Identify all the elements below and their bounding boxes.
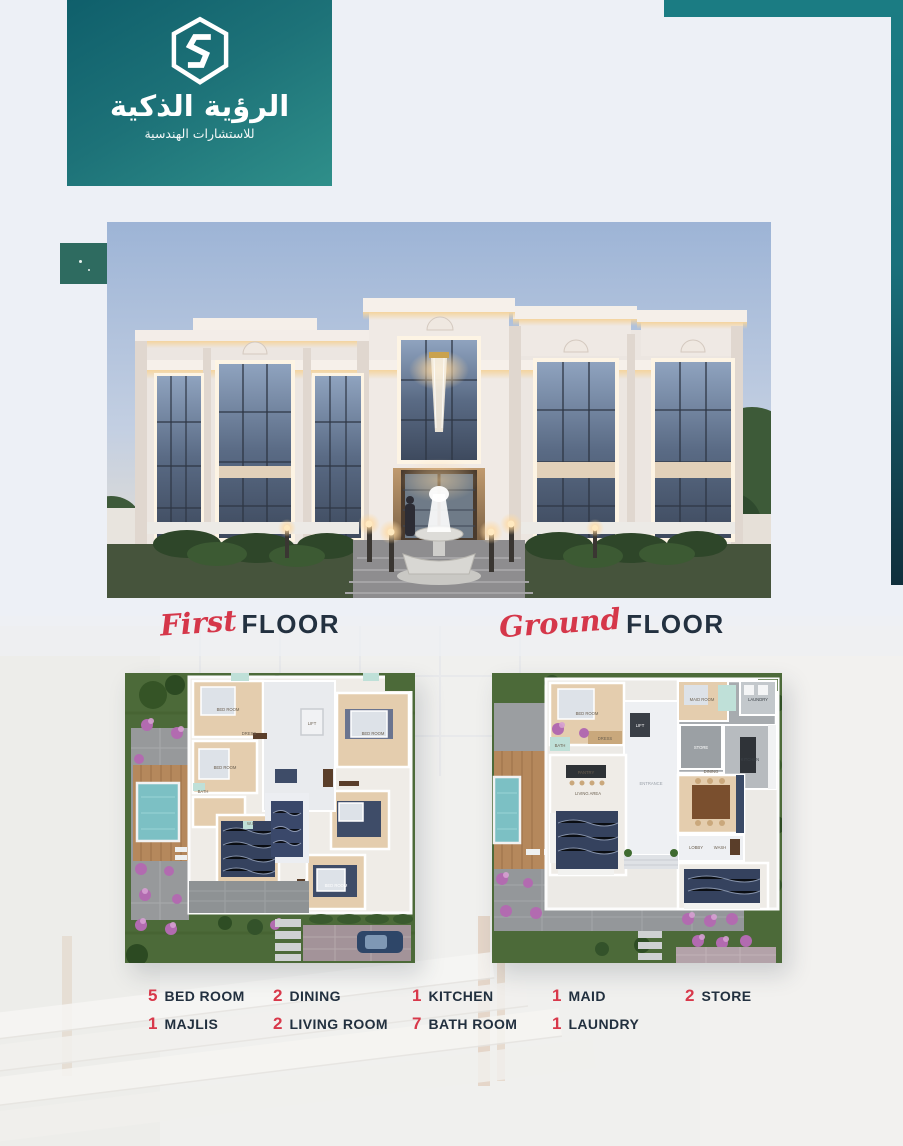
svg-text:PANTRY: PANTRY	[578, 770, 595, 775]
legend-item-store: 2 STORE	[685, 986, 751, 1006]
svg-text:BED ROOM: BED ROOM	[576, 711, 599, 716]
ground-floor-script: Ground	[498, 602, 622, 644]
legend-item-dining: 2 DINING	[273, 986, 341, 1006]
svg-text:BED ROOM: BED ROOM	[217, 707, 240, 712]
ground-floor-title: Ground FLOOR	[502, 606, 722, 652]
svg-text:ENTRANCE: ENTRANCE	[639, 781, 662, 786]
svg-text:LIFT: LIFT	[636, 723, 645, 728]
legend-item-bedroom: 5 BED ROOM	[148, 986, 245, 1006]
brand-title: الرؤية الذكية	[110, 90, 289, 123]
first-floor-word: FLOOR	[242, 609, 341, 640]
svg-text:STORE: STORE	[694, 745, 709, 750]
legend-item-bathroom: 7 BATH ROOM	[412, 1014, 517, 1034]
svg-text:DRESS: DRESS	[242, 731, 257, 736]
legend-item-majlis: 1 MAJLIS	[148, 1014, 218, 1034]
small-accent-square	[60, 243, 107, 284]
legend-item-laundry: 1 LAUNDRY	[552, 1014, 639, 1034]
legend-item-maid: 1 MAID	[552, 986, 606, 1006]
svg-text:LOBBY: LOBBY	[689, 845, 703, 850]
poster-canvas: الرؤية الذكية للاستشارات الهندسية	[0, 0, 903, 1146]
svg-text:BED ROOM: BED ROOM	[214, 765, 237, 770]
top-accent-bar	[664, 0, 903, 17]
first-floor-plan: BED ROOM BED ROOM BED ROOM BED ROOM BATH…	[125, 673, 415, 963]
first-floor-script: First	[159, 603, 238, 642]
svg-text:DINING: DINING	[704, 769, 719, 774]
villa-photo	[107, 222, 771, 598]
ground-floor-word: FLOOR	[626, 609, 725, 640]
ground-floor-plan: BED ROOM BATH DRESS MAID ROOM LAUNDRY LI…	[492, 673, 782, 963]
right-accent-strip	[891, 0, 903, 585]
svg-text:BATH: BATH	[555, 743, 566, 748]
brand-subtitle: للاستشارات الهندسية	[144, 126, 254, 141]
first-floor-title: First FLOOR	[140, 606, 360, 652]
hexagon-s-icon	[168, 16, 232, 86]
legend-item-livingroom: 2 LIVING ROOM	[273, 1014, 388, 1034]
svg-text:KITCHEN: KITCHEN	[741, 757, 759, 762]
svg-text:LAUNDRY: LAUNDRY	[748, 697, 768, 702]
svg-text:DRESS: DRESS	[598, 736, 613, 741]
svg-text:WASH: WASH	[714, 845, 726, 850]
room-legend: 5 BED ROOM 2 DINING 1 KITCHEN 1 MAID 2 S…	[148, 986, 768, 1046]
svg-text:BED ROOM: BED ROOM	[362, 731, 385, 736]
svg-text:MAID ROOM: MAID ROOM	[690, 697, 715, 702]
svg-text:W.C: W.C	[247, 821, 255, 826]
svg-text:LIFT: LIFT	[308, 721, 317, 726]
car	[357, 931, 403, 953]
svg-text:BATH: BATH	[198, 789, 209, 794]
svg-text:BED ROOM: BED ROOM	[325, 883, 348, 888]
svg-text:LIVING AREA: LIVING AREA	[575, 791, 601, 796]
brand-logo-box: الرؤية الذكية للاستشارات الهندسية	[67, 0, 332, 186]
legend-item-kitchen: 1 KITCHEN	[412, 986, 494, 1006]
